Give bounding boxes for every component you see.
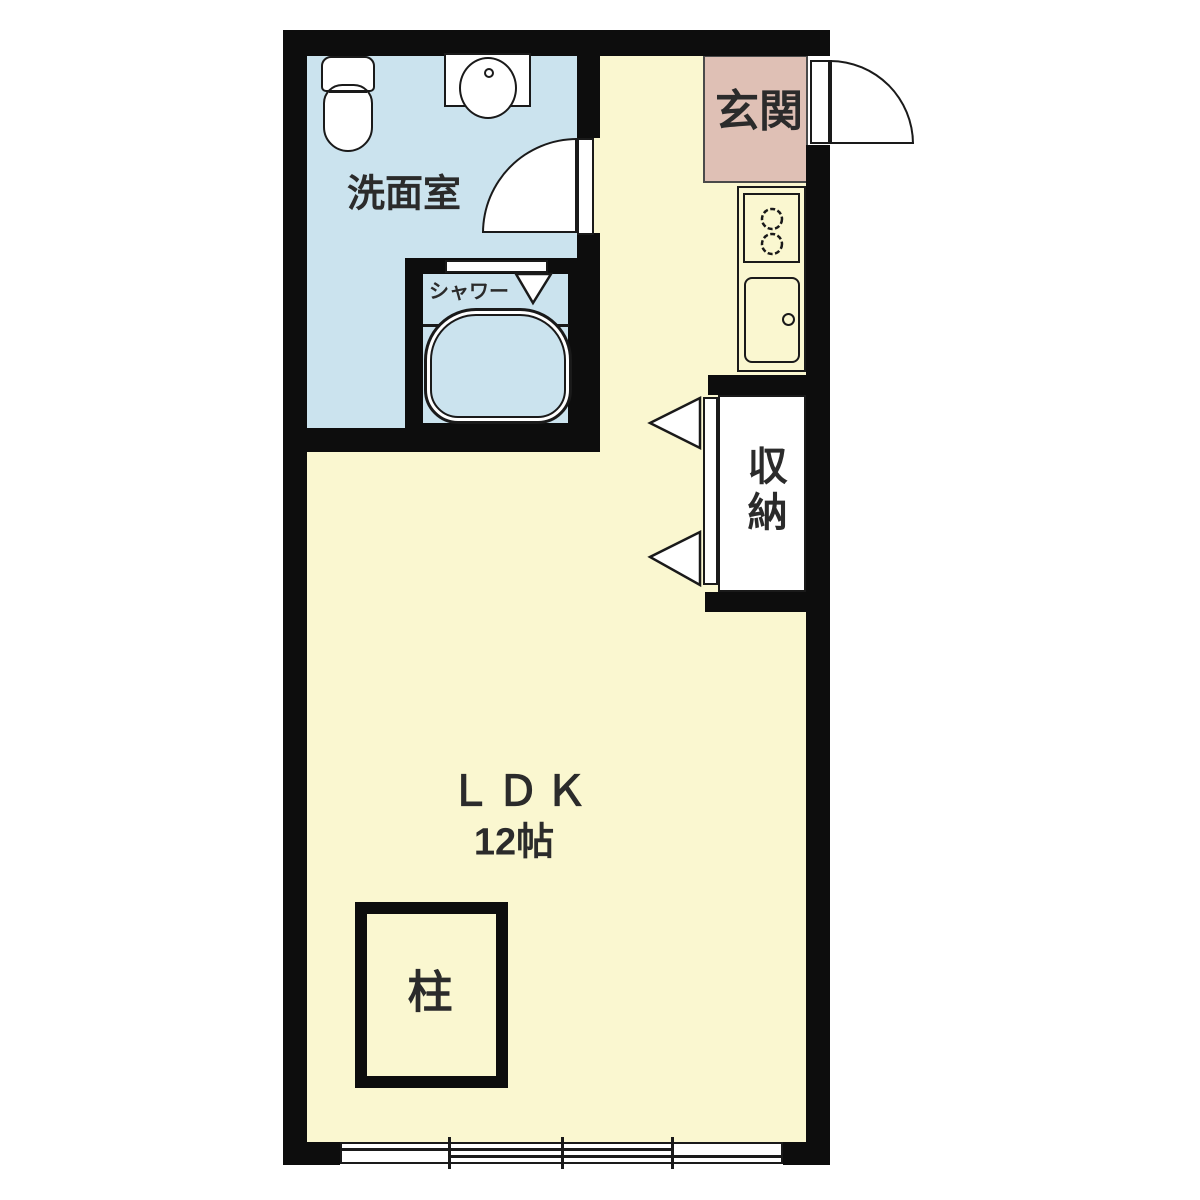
entrance-door-leaf <box>810 60 830 144</box>
pillar-label: 柱 <box>407 969 452 1018</box>
ldk-size-label: 12帖 <box>474 822 554 863</box>
wall-right <box>806 145 830 1165</box>
wall-bottom-right <box>783 1142 830 1165</box>
wall-left <box>283 30 307 1165</box>
bathtub-inner <box>430 314 566 418</box>
wall-top <box>283 30 830 56</box>
window-sash-line-lower <box>450 1155 783 1158</box>
washroom-label: 洗面室 <box>347 174 461 215</box>
wall-bottom-left <box>283 1142 340 1165</box>
kitchen-sink-knob <box>782 313 795 326</box>
wall-closet-bottom <box>705 592 830 612</box>
ldk-label: ＬＤＫ <box>449 768 593 813</box>
stove-burners-icon <box>743 193 800 263</box>
washbasin-faucet <box>484 68 494 78</box>
storage-label: 収納 <box>741 445 784 537</box>
entrance-label: 玄関 <box>715 88 803 136</box>
entrance-door-arc-icon <box>830 60 914 144</box>
floorplan-canvas: 洗面室 シャワー 玄関 収納 ＬＤＫ 12帖 柱 <box>0 0 1200 1200</box>
toilet-seat-line <box>329 90 367 93</box>
wall-washroom-right-upper <box>577 55 600 138</box>
shower-label: シャワー <box>429 282 509 304</box>
toilet-icon <box>323 84 373 152</box>
washroom-door-leaf <box>577 138 594 235</box>
window-tick-1 <box>448 1137 451 1169</box>
wall-kitchen-stub <box>708 375 830 395</box>
window-tick-3 <box>671 1137 674 1169</box>
washbasin-icon <box>459 57 517 119</box>
closet-door-leaf <box>703 397 718 585</box>
shower-door <box>445 260 548 273</box>
window-sash-line-upper <box>342 1148 673 1151</box>
window-tick-2 <box>561 1137 564 1169</box>
